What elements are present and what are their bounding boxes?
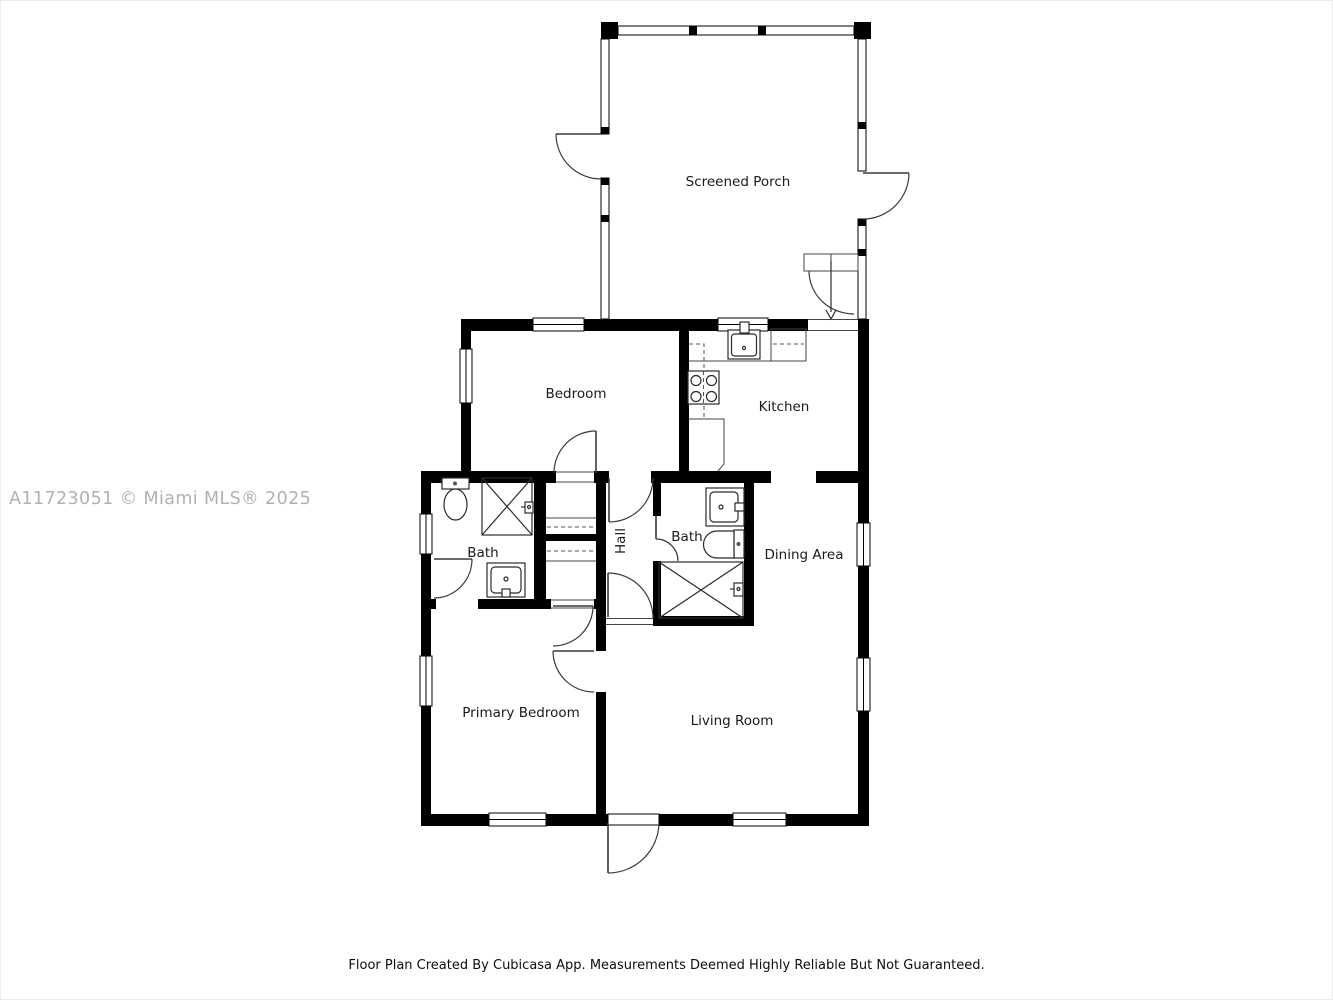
bathtub-icon	[659, 562, 743, 618]
room-label-bath-right: Bath	[671, 529, 702, 545]
porch-post	[601, 178, 609, 185]
door-swing-icon	[556, 134, 601, 179]
window-icon	[489, 813, 546, 826]
floor-plan-canvas: Screened Porch Bedroom Kitchen Bath Hall…	[1, 1, 1333, 1000]
counter-edge	[689, 419, 724, 471]
window-icon	[420, 656, 432, 706]
fridge-icon	[771, 329, 806, 361]
door-swing-icon	[553, 606, 593, 646]
vanity-sink-icon	[706, 488, 744, 526]
window-icon	[460, 349, 472, 403]
door-swing-icon	[608, 573, 653, 618]
room-labels: Screened Porch Bedroom Kitchen Bath Hall…	[462, 174, 843, 729]
porch-post	[858, 122, 866, 129]
vanity-sink-icon	[487, 563, 525, 597]
door-swing-icon	[863, 173, 909, 219]
disclaimer-text: Floor Plan Created By Cubicasa App. Meas…	[1, 958, 1332, 973]
door-swing-icon	[434, 559, 472, 598]
window-icon	[533, 318, 584, 331]
room-label-bath-left: Bath	[467, 545, 498, 561]
porch-post	[689, 26, 697, 35]
window-icon	[420, 514, 432, 554]
room-label-hall: Hall	[613, 528, 629, 554]
floor-plan-page: A11723051 © Miami MLS® 2025	[0, 0, 1333, 1000]
porch-screen-wall-top	[618, 26, 854, 35]
room-label-kitchen: Kitchen	[759, 399, 810, 415]
right-bath-fixtures	[659, 488, 744, 618]
room-label-living-room: Living Room	[691, 713, 774, 729]
stove-icon	[688, 371, 719, 404]
porch-post	[758, 26, 766, 35]
interior-doors	[434, 431, 678, 873]
kitchen-fixtures	[688, 322, 806, 471]
window-icon	[857, 658, 870, 711]
porch-screen-wall-right	[858, 219, 866, 319]
left-bath-fixtures	[442, 478, 533, 597]
room-label-dining-area: Dining Area	[765, 547, 844, 563]
porch-screen-wall-left	[601, 39, 609, 134]
stairs-icon	[804, 254, 858, 319]
window-icon	[857, 523, 870, 566]
porch-post	[601, 215, 609, 222]
porch-corner-post	[854, 22, 871, 39]
porch-screen-wall-left	[601, 178, 609, 319]
door-swing-icon	[554, 431, 596, 473]
toilet-icon	[704, 530, 745, 558]
window-icon	[733, 813, 786, 826]
porch-post	[858, 249, 866, 256]
porch-post	[601, 127, 609, 134]
room-label-primary-bedroom: Primary Bedroom	[462, 705, 580, 721]
shower-icon	[482, 478, 533, 535]
porch-corner-post	[601, 22, 618, 39]
front-door-threshold	[608, 814, 659, 825]
room-label-screened-porch: Screened Porch	[686, 174, 791, 190]
porch-post	[858, 219, 866, 226]
porch-screen-wall-right	[858, 39, 866, 171]
door-swing-icon	[609, 478, 653, 522]
room-label-bedroom: Bedroom	[545, 386, 606, 402]
toilet-icon	[442, 478, 469, 520]
door-swing-icon	[608, 823, 659, 873]
door-swing-icon	[553, 651, 594, 692]
